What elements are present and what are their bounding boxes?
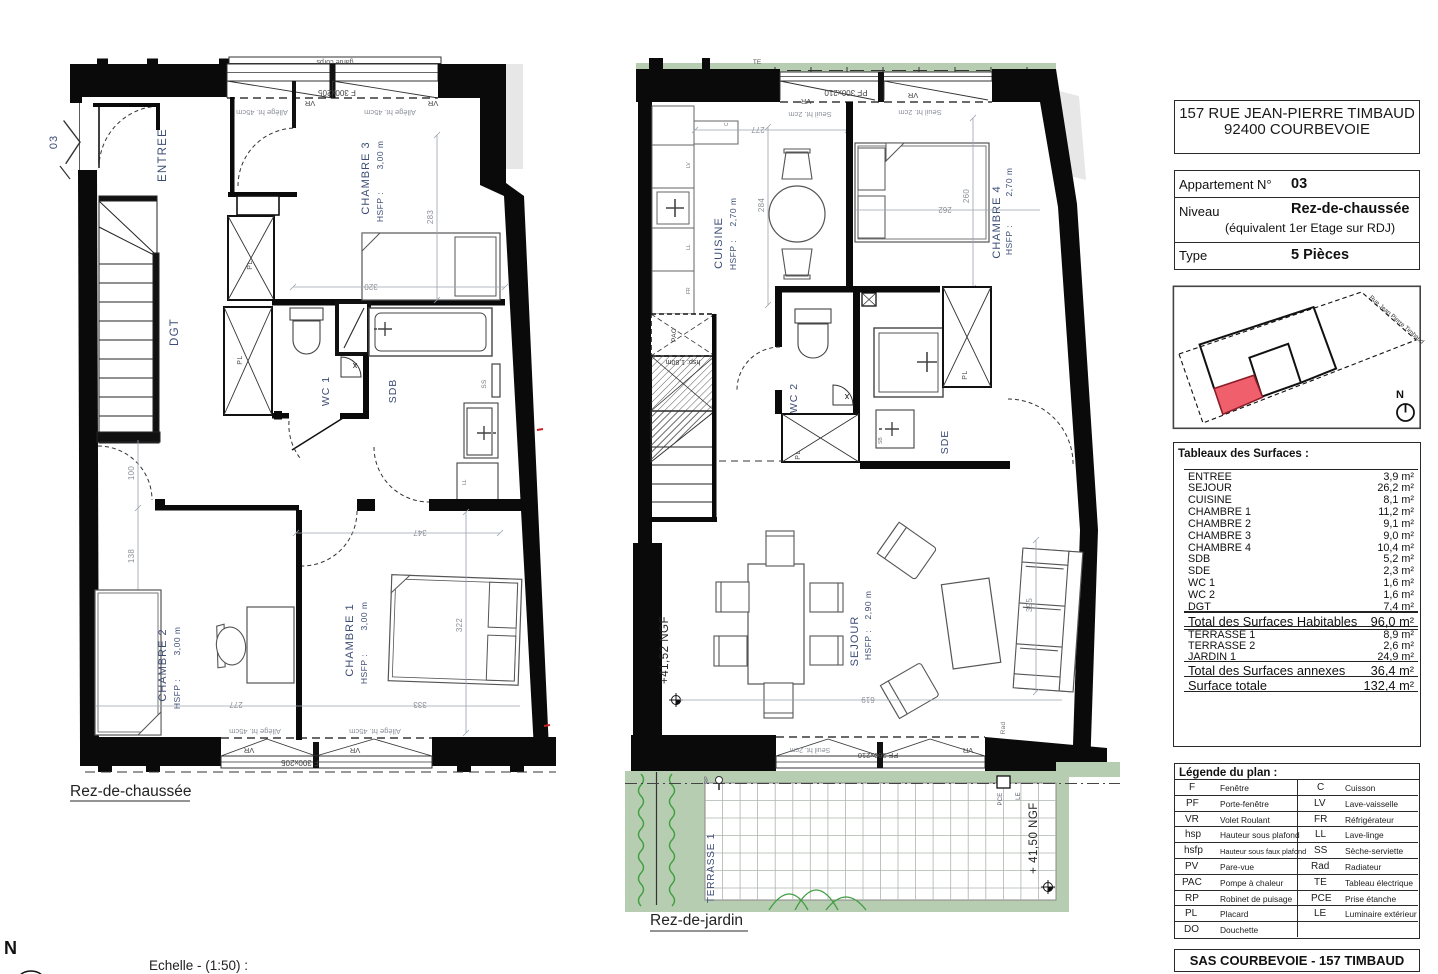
svg-text:PAC: PAC: [671, 328, 678, 342]
svg-text:320: 320: [364, 282, 378, 291]
svg-text:2,70 m: 2,70 m: [1004, 168, 1014, 197]
svg-text:262: 262: [938, 205, 952, 214]
svg-text:LE: LE: [1016, 792, 1022, 800]
svg-text:VR: VR: [907, 91, 918, 100]
svg-text:3,00 m: 3,00 m: [359, 602, 369, 631]
svg-text:3,00 m: 3,00 m: [375, 141, 385, 170]
svg-text:03: 03: [48, 135, 60, 149]
svg-text:277: 277: [751, 125, 765, 134]
svg-text:PL: PL: [237, 355, 244, 365]
svg-text:TERRASSE 1: TERRASSE 1: [706, 833, 717, 903]
svg-text:PL: PL: [247, 260, 254, 270]
svg-text:HSFP :: HSFP :: [863, 630, 873, 660]
svg-text:LV: LV: [686, 162, 692, 168]
svg-text:PL: PL: [962, 370, 969, 380]
svg-text:138: 138: [127, 549, 136, 563]
svg-text:Allège ht. 45cm: Allège ht. 45cm: [229, 727, 281, 736]
svg-text:SDE: SDE: [939, 430, 951, 455]
svg-text:333: 333: [413, 700, 427, 709]
svg-text:PF 300x210: PF 300x210: [858, 751, 898, 760]
svg-text:hsp: 1,80m: hsp: 1,80m: [666, 358, 701, 365]
svg-text:395: 395: [1025, 598, 1034, 612]
svg-text:VR: VR: [800, 97, 811, 106]
svg-text:Allège ht. 45cm: Allège ht. 45cm: [236, 108, 288, 117]
svg-text:CUISINE: CUISINE: [713, 217, 725, 269]
svg-text:3,00 m: 3,00 m: [172, 627, 182, 656]
svg-text:RP: RP: [704, 776, 710, 784]
svg-text:PCE: PCE: [998, 793, 1004, 806]
svg-text:F 300x205: F 300x205: [318, 88, 356, 97]
svg-text:HSFP :: HSFP :: [1004, 225, 1014, 255]
svg-text:+41,52 NGF: +41,52 NGF: [659, 616, 671, 684]
svg-text:VR: VR: [962, 746, 973, 755]
svg-text:SS: SS: [481, 379, 488, 389]
svg-text:VR: VR: [304, 99, 315, 108]
svg-text:ENTREE: ENTREE: [157, 128, 169, 182]
svg-text:HSFP :: HSFP :: [359, 654, 369, 684]
svg-text:VR: VR: [349, 746, 360, 755]
svg-text:x: x: [844, 392, 849, 402]
svg-text:CHAMBRE 2: CHAMBRE 2: [157, 628, 169, 701]
svg-text:284: 284: [757, 198, 766, 212]
svg-text:VR: VR: [427, 99, 438, 108]
svg-text:277: 277: [229, 700, 243, 709]
svg-text:TE: TE: [753, 59, 762, 66]
svg-text:Seuil ht. 2cm: Seuil ht. 2cm: [788, 110, 831, 119]
svg-text:260: 260: [962, 189, 971, 203]
svg-text:CHAMBRE 3: CHAMBRE 3: [360, 141, 372, 214]
svg-text:Allège ht. 45cm: Allège ht. 45cm: [364, 108, 416, 117]
svg-text:CHAMBRE 1: CHAMBRE 1: [344, 603, 356, 676]
svg-text:619: 619: [861, 695, 875, 704]
svg-text:WC 1: WC 1: [320, 376, 332, 406]
svg-text:SDB: SDB: [387, 379, 399, 404]
svg-text:HSFP :: HSFP :: [728, 240, 738, 270]
svg-text:x: x: [352, 361, 357, 371]
svg-text:HSFP :: HSFP :: [172, 679, 182, 709]
svg-text:VR: VR: [243, 746, 254, 755]
svg-text:283: 283: [426, 210, 435, 224]
svg-text:HSFP :: HSFP :: [375, 192, 385, 222]
svg-text:Allège ht. 45cm: Allège ht. 45cm: [349, 727, 401, 736]
svg-text:+ 41,50 NGF: + 41,50 NGF: [1028, 802, 1040, 874]
svg-text:Rez-de-jardin: Rez-de-jardin: [650, 912, 743, 929]
svg-text:PL: PL: [795, 450, 802, 460]
svg-text:Seuil ht. 2cm: Seuil ht. 2cm: [790, 746, 831, 753]
svg-text:2,90 m: 2,90 m: [863, 591, 873, 620]
svg-text:LL: LL: [686, 244, 692, 250]
svg-text:DGT: DGT: [169, 318, 181, 346]
svg-text:SEJOUR: SEJOUR: [849, 616, 861, 667]
svg-text:C: C: [724, 122, 730, 126]
svg-text:Rez-de-chaussée: Rez-de-chaussée: [70, 783, 191, 800]
svg-text:F 300x205: F 300x205: [281, 758, 319, 767]
svg-text:Rad: Rad: [1000, 722, 1007, 735]
svg-text:SB: SB: [878, 437, 884, 444]
svg-text:Seuil ht. 2cm: Seuil ht. 2cm: [898, 108, 941, 117]
svg-text:322: 322: [455, 618, 464, 632]
svg-text:LL: LL: [462, 479, 468, 485]
svg-text:FR: FR: [686, 287, 692, 294]
svg-text:PF 300x210: PF 300x210: [824, 88, 868, 97]
svg-text:CHAMBRE 4: CHAMBRE 4: [991, 185, 1003, 258]
svg-text:100: 100: [127, 466, 136, 480]
svg-text:N: N: [1396, 389, 1404, 401]
svg-text:347: 347: [413, 528, 427, 537]
svg-text:WC 2: WC 2: [788, 383, 800, 413]
svg-text:2,70 m: 2,70 m: [728, 198, 738, 227]
